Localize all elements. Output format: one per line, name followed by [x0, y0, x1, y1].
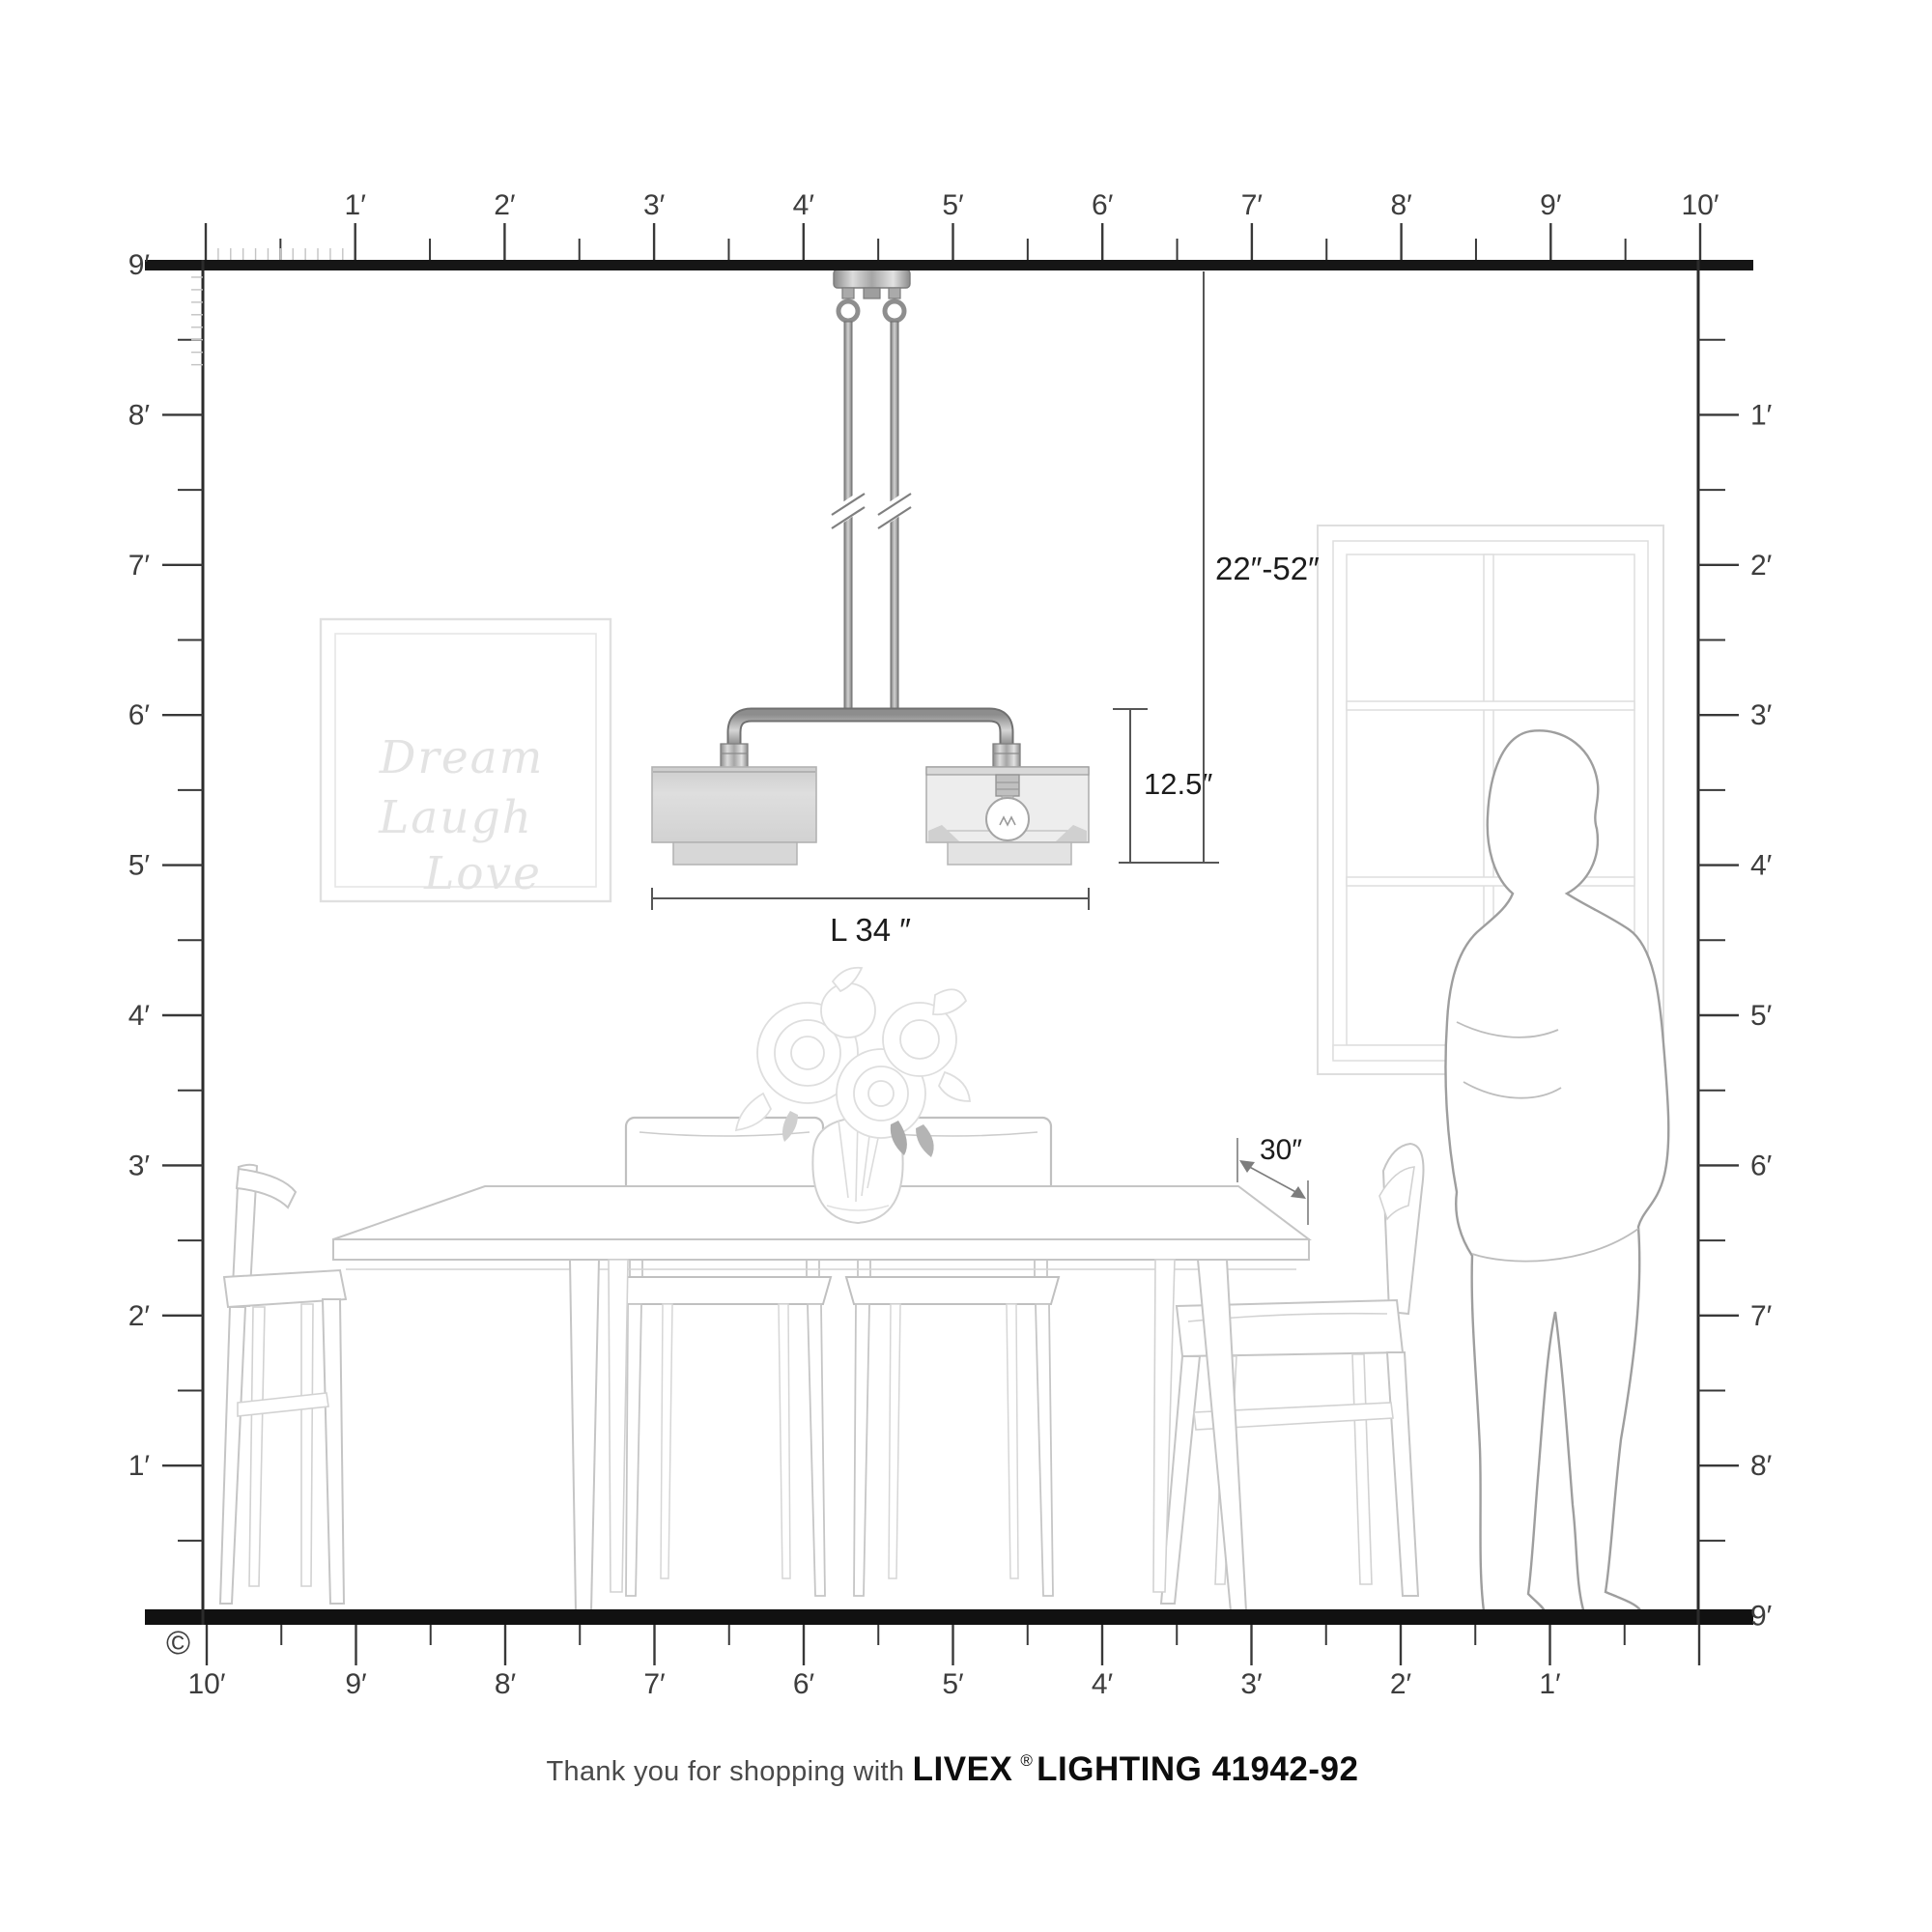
artwork-word-laugh: Laugh — [378, 791, 533, 844]
ruler-top: 1′2′3′4′5′6′7′8′9′10′ — [206, 189, 1719, 260]
ruler-label: 9′ — [345, 1668, 367, 1700]
fixture-canopy — [834, 270, 910, 288]
window-mullion-horizontal-2 — [1347, 877, 1634, 886]
ruler-label: 8′ — [1390, 189, 1412, 221]
footer-prefix: Thank you for shopping with — [547, 1756, 905, 1787]
artwork-word-love: Love — [423, 847, 542, 900]
dimension-annotations: L 34 ″ 12.5″ 22″-52″ 30″ — [652, 271, 1320, 1225]
bulb-socket — [996, 775, 1019, 796]
footer-brand: LIVEX — [913, 1750, 1013, 1788]
ruler-label: 4′ — [1750, 850, 1773, 882]
ruler-label: 3′ — [128, 1150, 151, 1181]
ruler-label: 3′ — [1750, 699, 1773, 731]
scale-diagram-page: Dream Laugh Love — [0, 0, 1932, 1932]
fixture-shade-right — [926, 767, 1089, 865]
ruler-label: 8′ — [1750, 1450, 1773, 1482]
wall-art-frame: Dream Laugh Love — [321, 619, 611, 901]
ruler-left: 9′8′7′6′5′4′3′2′1′ — [128, 249, 203, 1541]
ruler-label: 1′ — [1750, 399, 1773, 431]
ruler-label: 5′ — [942, 1668, 964, 1700]
ruler-label: 7′ — [1750, 1300, 1773, 1332]
ruler-bottom: 10′9′8′7′6′5′4′3′2′1′ — [188, 1625, 1700, 1700]
light-fixture — [652, 270, 1089, 865]
copyright-symbol: © — [166, 1625, 190, 1662]
drop-range-label: 22″-52″ — [1215, 551, 1320, 586]
ruler-label: 1′ — [1539, 1668, 1561, 1700]
fixture-sockets — [721, 744, 1020, 768]
table-leg — [609, 1260, 628, 1592]
ruler-label: 7′ — [128, 550, 151, 582]
ruler-label: 5′ — [942, 189, 964, 221]
footer-model: LIGHTING 41942-92 — [1037, 1750, 1358, 1788]
ruler-label: 6′ — [1092, 189, 1114, 221]
ruler-label: 9′ — [128, 249, 151, 281]
ruler-label: 9′ — [1750, 1601, 1773, 1633]
footer-thank-you: Thank you for shopping with LIVEX®LIGHTI… — [0, 1750, 1918, 1789]
ruler-label: 1′ — [345, 189, 367, 221]
fixture-length-label: L 34 ″ — [830, 912, 911, 948]
light-bulb — [986, 798, 1029, 840]
ruler-label: 7′ — [643, 1668, 666, 1700]
ruler-label: 6′ — [128, 699, 151, 731]
ruler-label: 7′ — [1241, 189, 1264, 221]
artwork-word-dream: Dream — [379, 731, 545, 784]
ruler-label: 10′ — [1682, 189, 1719, 221]
ruler-label: 9′ — [1540, 189, 1562, 221]
ruler-label: 6′ — [1750, 1150, 1773, 1181]
ruler-label: 4′ — [1092, 1668, 1114, 1700]
ruler-label: 4′ — [793, 189, 815, 221]
ruler-label: 2′ — [1750, 550, 1773, 582]
ruler-label: 2′ — [128, 1300, 151, 1332]
ceiling-line — [145, 260, 1753, 270]
ruler-label: 10′ — [188, 1668, 226, 1700]
ruler-label: 3′ — [1240, 1668, 1263, 1700]
ruler-label: 5′ — [128, 850, 151, 882]
fixture-height-label: 12.5″ — [1144, 767, 1212, 801]
ruler-label: 2′ — [1390, 1668, 1412, 1700]
ruler-right: 1′2′3′4′5′6′7′8′9′ — [1698, 340, 1773, 1633]
ruler-label: 1′ — [128, 1450, 151, 1482]
window-mullion-horizontal-1 — [1347, 701, 1634, 710]
fixture-bar — [734, 715, 1007, 746]
fixture-rods — [832, 288, 912, 712]
floor-line — [145, 1609, 1753, 1625]
ruler-label: 3′ — [643, 189, 666, 221]
ruler-label: 5′ — [1750, 1000, 1773, 1032]
ruler-label: 6′ — [793, 1668, 815, 1700]
table-leg — [570, 1260, 599, 1611]
ruler-label: 8′ — [495, 1668, 517, 1700]
room-scale-diagram: Dream Laugh Love — [0, 0, 1932, 1932]
dining-chair-left-end — [220, 1165, 346, 1604]
ruler-label: 4′ — [128, 1000, 151, 1032]
registered-trademark-symbol: ® — [1020, 1751, 1033, 1770]
ruler-label: 2′ — [494, 189, 516, 221]
fixture-shade-left — [652, 767, 816, 865]
table-depth-label: 30″ — [1260, 1134, 1302, 1166]
ruler-label: 8′ — [128, 399, 151, 431]
